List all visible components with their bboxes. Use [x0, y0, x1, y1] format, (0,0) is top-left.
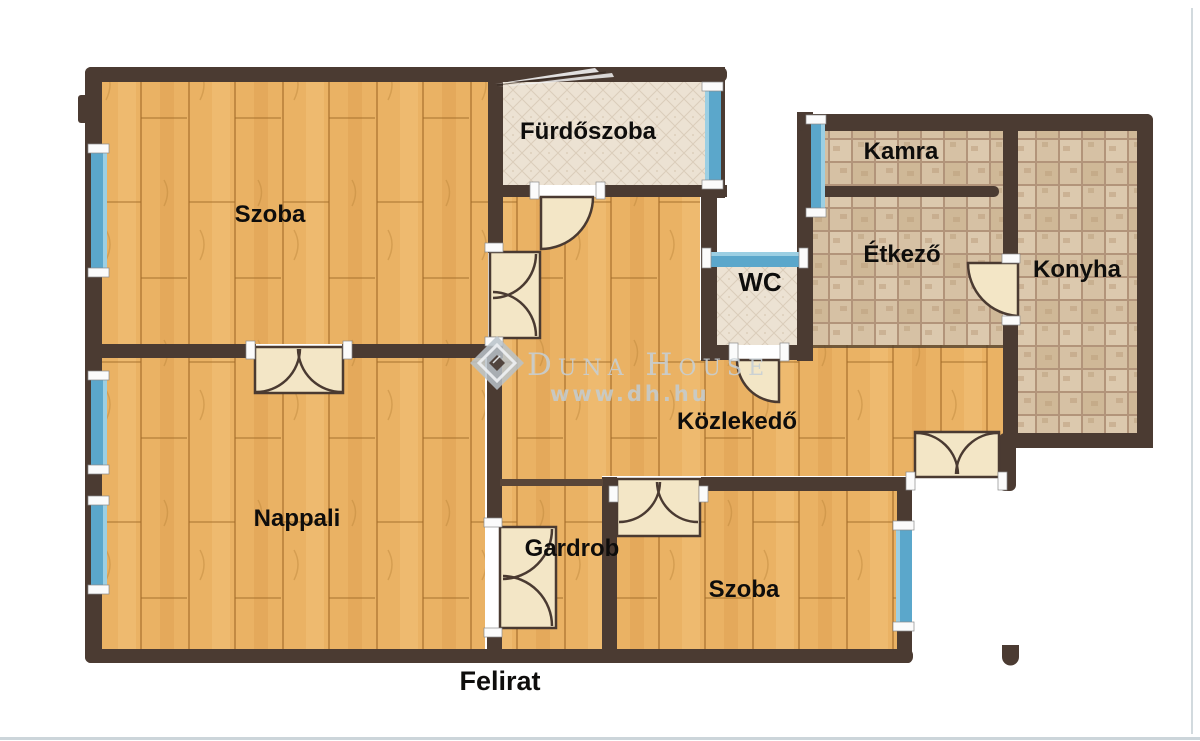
floorplan-svg: Duna House www.dh.hu Szoba Fürdőszoba Ka… — [0, 0, 1200, 741]
wall-pantry-left — [797, 112, 813, 361]
label-kitchen: Konyha — [1033, 256, 1122, 283]
window-bedroom-bottom — [893, 521, 914, 631]
label-wardrobe: Gardrob — [525, 535, 620, 562]
edge-line-bottom — [0, 737, 1200, 740]
wall-dining-kitchen-upper — [1003, 131, 1018, 263]
door-bedroom-living — [255, 347, 343, 393]
wall-dining-kitchen-lower — [1003, 316, 1018, 437]
wall-bathroom-left — [488, 67, 503, 253]
watermark-brand-text: Duna House — [527, 347, 770, 383]
door-hall-balcony — [915, 432, 999, 477]
wall-pantry-divider — [812, 186, 999, 197]
window-left-2 — [88, 371, 109, 474]
wall-left-bump — [78, 95, 90, 123]
wall-top-right — [797, 114, 1153, 131]
window-left-1 — [88, 144, 109, 277]
floor-transition-line — [812, 345, 1003, 348]
wall-kitchen-bottom — [1003, 433, 1153, 448]
label-wc: WC — [738, 267, 782, 297]
label-caption: Felirat — [459, 666, 540, 696]
door-bedroom-hall — [490, 252, 540, 338]
window-left-3 — [88, 496, 109, 594]
edge-line-right — [1191, 8, 1193, 734]
label-livingroom: Nappali — [254, 505, 341, 532]
room-livingroom-floor — [102, 358, 485, 649]
door-bedroom-bottom — [617, 479, 700, 536]
label-bedroom-top: Szoba — [235, 201, 306, 228]
label-dining: Étkező — [863, 240, 940, 268]
label-bedroom-bottom: Szoba — [709, 576, 780, 603]
wall-wardrobe-right — [602, 477, 617, 663]
watermark-url-text: www.dh.hu — [550, 382, 710, 406]
wall-divider-left — [96, 344, 256, 358]
door-stop-mark — [1002, 645, 1019, 666]
wall-hall-bottom — [701, 477, 912, 491]
window-wc — [702, 248, 808, 268]
label-pantry: Kamra — [864, 138, 939, 165]
label-hallway: Közlekedő — [677, 408, 797, 435]
wall-bathroom-bottom-left — [488, 185, 535, 197]
wall-lightwell-left — [701, 189, 717, 361]
wall-wardrobe-top-thin — [500, 479, 603, 486]
wall-top — [85, 67, 727, 82]
window-bathroom — [702, 82, 723, 189]
floorplan-canvas: Duna House www.dh.hu Szoba Fürdőszoba Ka… — [0, 0, 1200, 741]
wall-kitchen-right — [1137, 114, 1153, 448]
label-bathroom: Fürdőszoba — [520, 118, 657, 145]
